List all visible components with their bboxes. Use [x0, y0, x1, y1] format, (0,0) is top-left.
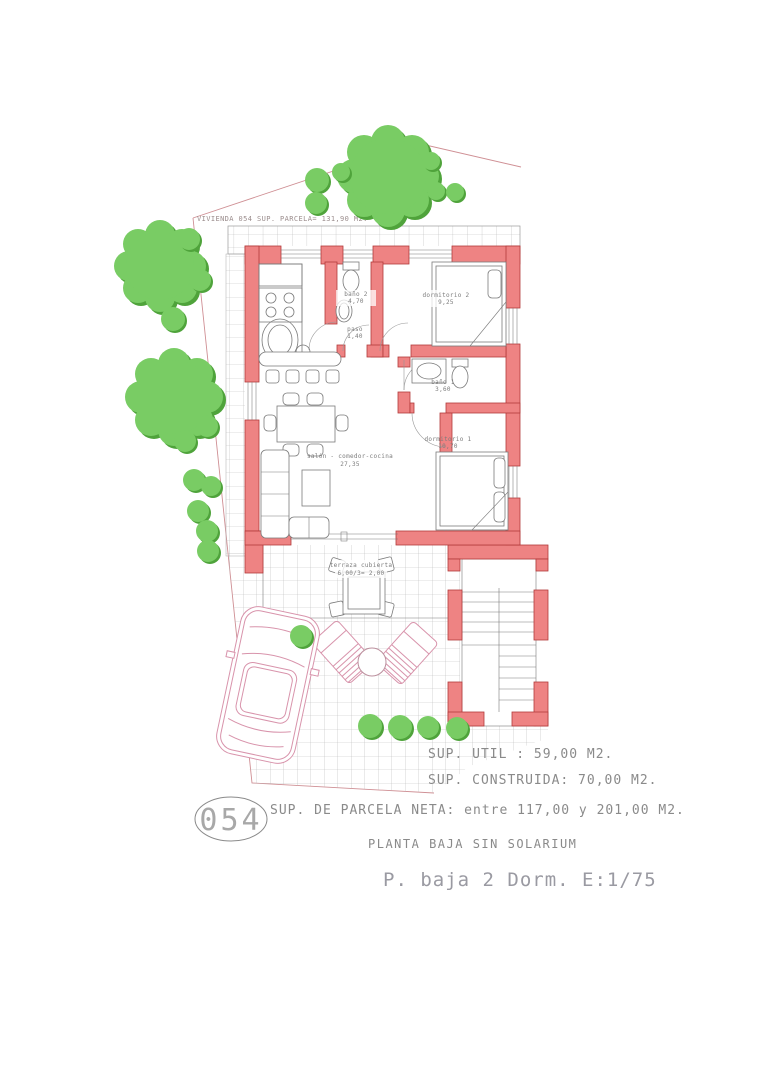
bush	[305, 168, 331, 194]
bush	[201, 476, 223, 498]
room-label-paso-name: paso	[347, 326, 363, 333]
sup-util-text: SUP. UTIL : 59,00 M2.	[428, 747, 613, 762]
sup-construida-text: SUP. CONSTRUIDA: 70,00 M2.	[428, 773, 658, 788]
room-label-dorm1-area: 10,70	[438, 443, 458, 450]
room-label-bano2-area: 4,70	[348, 298, 364, 305]
bed-dormitorio1	[436, 452, 508, 530]
bush	[446, 183, 466, 203]
bush	[305, 192, 329, 216]
room-label-dorm2-area: 9,25	[438, 299, 454, 306]
room-label-salon-area: 27,35	[340, 461, 360, 468]
bush	[197, 540, 221, 564]
room-label-bano2-name: baño 2	[344, 291, 368, 298]
garden-table	[358, 648, 386, 676]
sup-parcela-text: SUP. DE PARCELA NETA: entre 117,00 y 201…	[270, 803, 685, 818]
room-label-paso-area: 1,40	[347, 333, 363, 340]
plan-number-text: 054	[199, 803, 262, 838]
drawing-title-text: P. baja 2 Dorm. E:1/75	[383, 869, 657, 891]
bush	[161, 307, 187, 333]
parcel-note-text: VIVIENDA 054 SUP. PARCELA= 131,90 M2.	[197, 215, 368, 223]
room-label-dorm2-name: dormitorio 2	[423, 292, 470, 299]
room-label-terraza-name: terraza cubierta	[330, 562, 393, 569]
room-label-dorm1-name: dormitorio 1	[425, 436, 472, 443]
room-label-salon-name: salón - comedor-cocina	[307, 453, 393, 460]
floor-plan-page: VIVIENDA 054 SUP. PARCELA= 131,90 M2.	[0, 0, 763, 1080]
floor-plan-drawing: VIVIENDA 054 SUP. PARCELA= 131,90 M2.	[0, 0, 763, 1080]
room-label-bano1-name: baño 1	[431, 379, 455, 386]
planta-baja-text: PLANTA BAJA SIN SOLARIUM	[368, 837, 577, 851]
room-label-terraza-area: 6,00/3= 2,00	[338, 570, 385, 577]
kitchen-fixtures	[259, 264, 310, 361]
room-label-bano1-area: 3,60	[435, 386, 451, 393]
staircase	[448, 545, 548, 726]
